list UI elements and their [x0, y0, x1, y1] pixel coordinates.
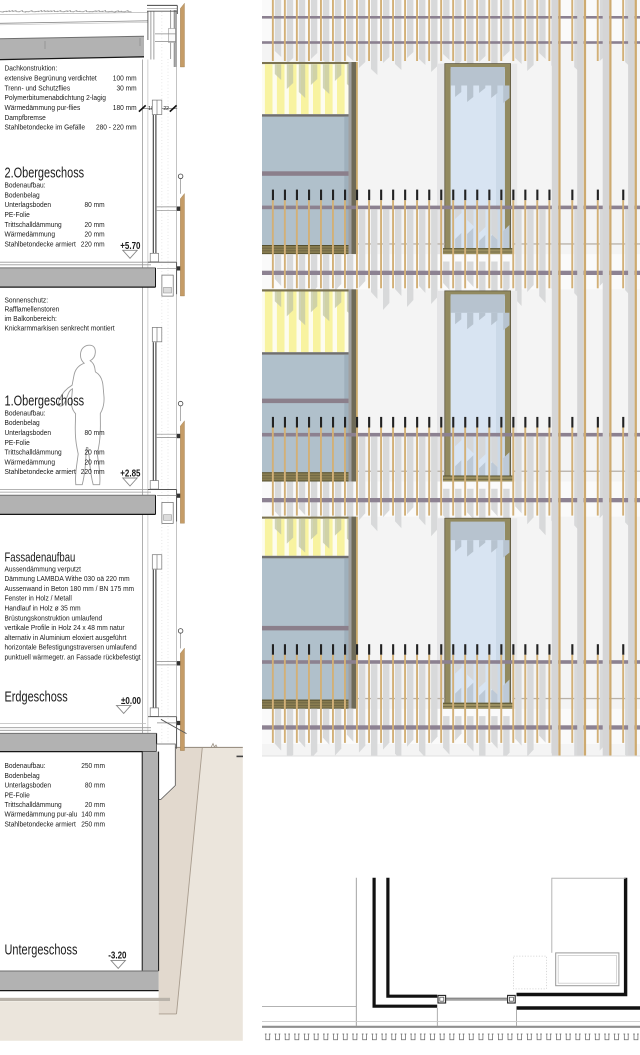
svg-text:140 mm: 140 mm [81, 811, 105, 818]
svg-text:220 mm: 220 mm [81, 241, 105, 248]
svg-text:30 mm: 30 mm [116, 85, 136, 92]
svg-text:vertikale Profile in Holz 24 x: vertikale Profile in Holz 24 x 48 mm nat… [4, 625, 125, 632]
svg-text:-3.20: -3.20 [108, 950, 126, 961]
svg-text:Unterlagsboden: Unterlagsboden [4, 430, 51, 437]
svg-text:Aussendämmung verputzt: Aussendämmung verputzt [4, 566, 81, 573]
svg-text:280 - 220 mm: 280 - 220 mm [96, 124, 137, 131]
svg-text:Dachkonstruktion:: Dachkonstruktion: [4, 65, 57, 72]
svg-text:Untergeschoss: Untergeschoss [5, 941, 78, 958]
svg-text:100 mm: 100 mm [113, 75, 137, 82]
svg-text:Stahlbetondecke armiert: Stahlbetondecke armiert [4, 469, 75, 476]
svg-text:alternativ in Aluminium eloxie: alternativ in Aluminium eloxiert ausgefü… [4, 635, 126, 642]
svg-text:Rafflamellenstoren: Rafflamellenstoren [4, 306, 59, 313]
svg-text:Dämmung LAMBDA Withe 030 oä 2: Dämmung LAMBDA Withe 030 oä 220 mm [4, 576, 129, 583]
svg-text:220 mm: 220 mm [81, 469, 105, 476]
svg-text:20 mm: 20 mm [84, 449, 104, 456]
svg-text:Trittschalldämmung: Trittschalldämmung [4, 221, 61, 228]
svg-text:horizontale Befestigungstraver: horizontale Befestigungstraversen umlauf… [4, 644, 136, 651]
svg-text:Handlauf in Holz ø 35 mm: Handlauf in Holz ø 35 mm [4, 605, 80, 612]
svg-text:Trenn- und Schutzflies: Trenn- und Schutzflies [4, 85, 70, 92]
svg-text:20 mm: 20 mm [84, 459, 104, 466]
svg-text:im Balkonbereich:: im Balkonbereich: [4, 316, 56, 323]
svg-text:20 mm: 20 mm [85, 802, 105, 809]
svg-text:Wärmedämmung: Wärmedämmung [4, 459, 55, 466]
svg-text:Stahlbetondecke armiert: Stahlbetondecke armiert [4, 821, 75, 828]
svg-text:Erdgeschoss: Erdgeschoss [5, 688, 69, 705]
svg-text:Wärmedämmung pur-flies: Wärmedämmung pur-flies [4, 105, 80, 112]
svg-text:extensive Begrünung verdichtet: extensive Begrünung verdichtet [4, 75, 96, 82]
svg-text:180 mm: 180 mm [113, 105, 137, 112]
svg-text:22: 22 [163, 106, 169, 112]
svg-text:Bodenbelag: Bodenbelag [4, 420, 39, 427]
svg-text:Wärmedämmung: Wärmedämmung [4, 231, 55, 238]
svg-text:+2.85: +2.85 [120, 468, 140, 479]
svg-text:Polymerbitumenabdichtung 2-lag: Polymerbitumenabdichtung 2-lagig [4, 95, 105, 102]
svg-text:80 mm: 80 mm [84, 202, 104, 209]
svg-text:250 mm: 250 mm [81, 821, 105, 828]
svg-text:punktuell wärmegetr. an Fassa: punktuell wärmegetr. an Fassade rückbefe… [4, 654, 140, 661]
svg-text:±0.00: ±0.00 [121, 695, 141, 706]
svg-text:Bodenbelag: Bodenbelag [4, 192, 39, 199]
svg-text:Unterlagsboden: Unterlagsboden [4, 782, 51, 789]
svg-text:Sonnenschutz:: Sonnenschutz: [4, 297, 48, 304]
svg-text:PE-Folie: PE-Folie [4, 792, 29, 799]
svg-text:PE-Folie: PE-Folie [4, 212, 29, 219]
svg-text:Stahlbetondecke armiert: Stahlbetondecke armiert [4, 241, 75, 248]
svg-text:Unterlagsboden: Unterlagsboden [4, 202, 51, 209]
svg-text:PE-Folie: PE-Folie [4, 439, 29, 446]
svg-text:Bodenaufbau:: Bodenaufbau: [4, 410, 45, 417]
svg-text:20 mm: 20 mm [84, 231, 104, 238]
svg-text:Brüstungskonstruktion umlaufen: Brüstungskonstruktion umlaufend [4, 615, 102, 622]
svg-text:+5.70: +5.70 [120, 240, 140, 251]
svg-text:Dampfbremse: Dampfbremse [4, 114, 45, 121]
svg-text:2.Obergeschoss: 2.Obergeschoss [5, 164, 85, 181]
svg-text:Bodenaufbau:: Bodenaufbau: [4, 182, 45, 189]
svg-text:Bodenaufbau:: Bodenaufbau: [4, 763, 45, 770]
svg-text:Stahlbetondecke im Gefälle: Stahlbetondecke im Gefälle [4, 124, 85, 131]
svg-text:Knickarmmarkisen senkrecht mon: Knickarmmarkisen senkrecht montiert [4, 325, 114, 332]
svg-text:Bodenbelag: Bodenbelag [4, 773, 39, 780]
svg-text:80 mm: 80 mm [85, 782, 105, 789]
svg-text:20 mm: 20 mm [84, 221, 104, 228]
svg-text:Wärmedämmung pur-alu: Wärmedämmung pur-alu [4, 811, 77, 818]
svg-text:Fenster in Holz / Metall: Fenster in Holz / Metall [4, 595, 72, 602]
svg-text:250 mm: 250 mm [81, 763, 105, 770]
svg-text:Trittschalldämmung: Trittschalldämmung [4, 802, 61, 809]
svg-text:1.Obergeschoss: 1.Obergeschoss [5, 392, 85, 409]
svg-text:80 mm: 80 mm [84, 430, 104, 437]
svg-text:Aussenwand in Beton 180 mm / B: Aussenwand in Beton 180 mm / BN 175 mm [4, 586, 134, 593]
svg-text:Fassadenaufbau: Fassadenaufbau [5, 551, 76, 565]
svg-text:Trittschalldämmung: Trittschalldämmung [4, 449, 61, 456]
